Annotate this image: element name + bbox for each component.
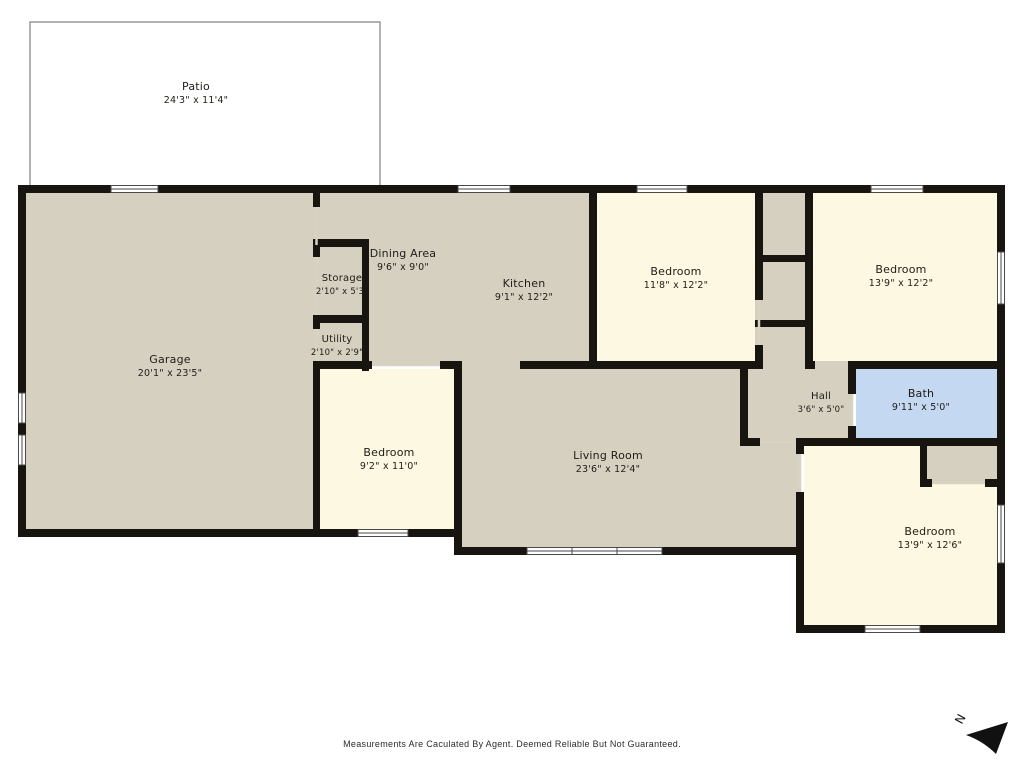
room-dims: 9'11" x 5'0" [892,402,950,414]
room-name: Garage [138,353,203,367]
room-closet-br [920,446,997,483]
room-dims: 2'10" x 5'3" [316,287,368,298]
room-label-bedroom-lower-left: Bedroom 9'2" x 11'0" [360,446,418,473]
room-label-utility: Utility 2'10" x 2'9" [311,334,363,358]
room-dims: 11'8" x 12'2" [644,280,709,292]
room-dims: 13'9" x 12'2" [869,278,934,290]
room-dims: 9'2" x 11'0" [360,461,418,473]
room-dims: 20'1" x 23'5" [138,368,203,380]
room-dims: 13'9" x 12'6" [898,540,963,552]
disclaimer-text: Measurements Are Caculated By Agent. Dee… [343,739,681,749]
room-label-kitchen: Kitchen 9'1" x 12'2" [495,277,553,304]
room-dims: 9'1" x 12'2" [495,292,553,304]
room-label-bedroom-lower-right: Bedroom 13'9" x 12'6" [898,525,963,552]
room-dims: 2'10" x 2'9" [311,348,363,359]
room-label-garage: Garage 20'1" x 23'5" [138,353,203,380]
room-label-living-room: Living Room 23'6" x 12'4" [573,449,643,476]
room-name: Kitchen [495,277,553,291]
room-dims: 3'6" x 5'0" [798,405,845,416]
room-label-hall: Hall 3'6" x 5'0" [798,391,845,415]
room-dims: 9'6" x 9'0" [370,262,437,274]
room-label-bath: Bath 9'11" x 5'0" [892,387,950,414]
room-name: Living Room [573,449,643,463]
floor-plan-drawing [0,0,1024,768]
room-dims: 23'6" x 12'4" [573,464,643,476]
room-name: Storage [316,273,368,286]
north-arrow-icon [966,722,1008,754]
room-name: Bedroom [898,525,963,539]
room-corridor-closets [755,189,813,369]
room-name: Bedroom [360,446,418,460]
room-name: Bedroom [869,263,934,277]
room-label-storage: Storage 2'10" x 5'3" [316,273,368,297]
room-name: Dining Area [370,247,437,261]
room-label-bedroom-top-right: Bedroom 13'9" x 12'2" [869,263,934,290]
room-name: Hall [798,391,845,404]
room-name: Bedroom [644,265,709,279]
room-name: Bath [892,387,950,401]
room-living-ext [740,446,800,551]
room-label-dining-area: Dining Area 9'6" x 9'0" [370,247,437,274]
room-label-patio: Patio 24'3" x 11'4" [164,80,229,107]
room-name: Patio [164,80,229,94]
floor-plan-page: Patio 24'3" x 11'4" Garage 20'1" x 23'5"… [0,0,1024,768]
room-dims: 24'3" x 11'4" [164,95,229,107]
room-name: Utility [311,334,363,347]
room-label-bedroom-top-mid: Bedroom 11'8" x 12'2" [644,265,709,292]
